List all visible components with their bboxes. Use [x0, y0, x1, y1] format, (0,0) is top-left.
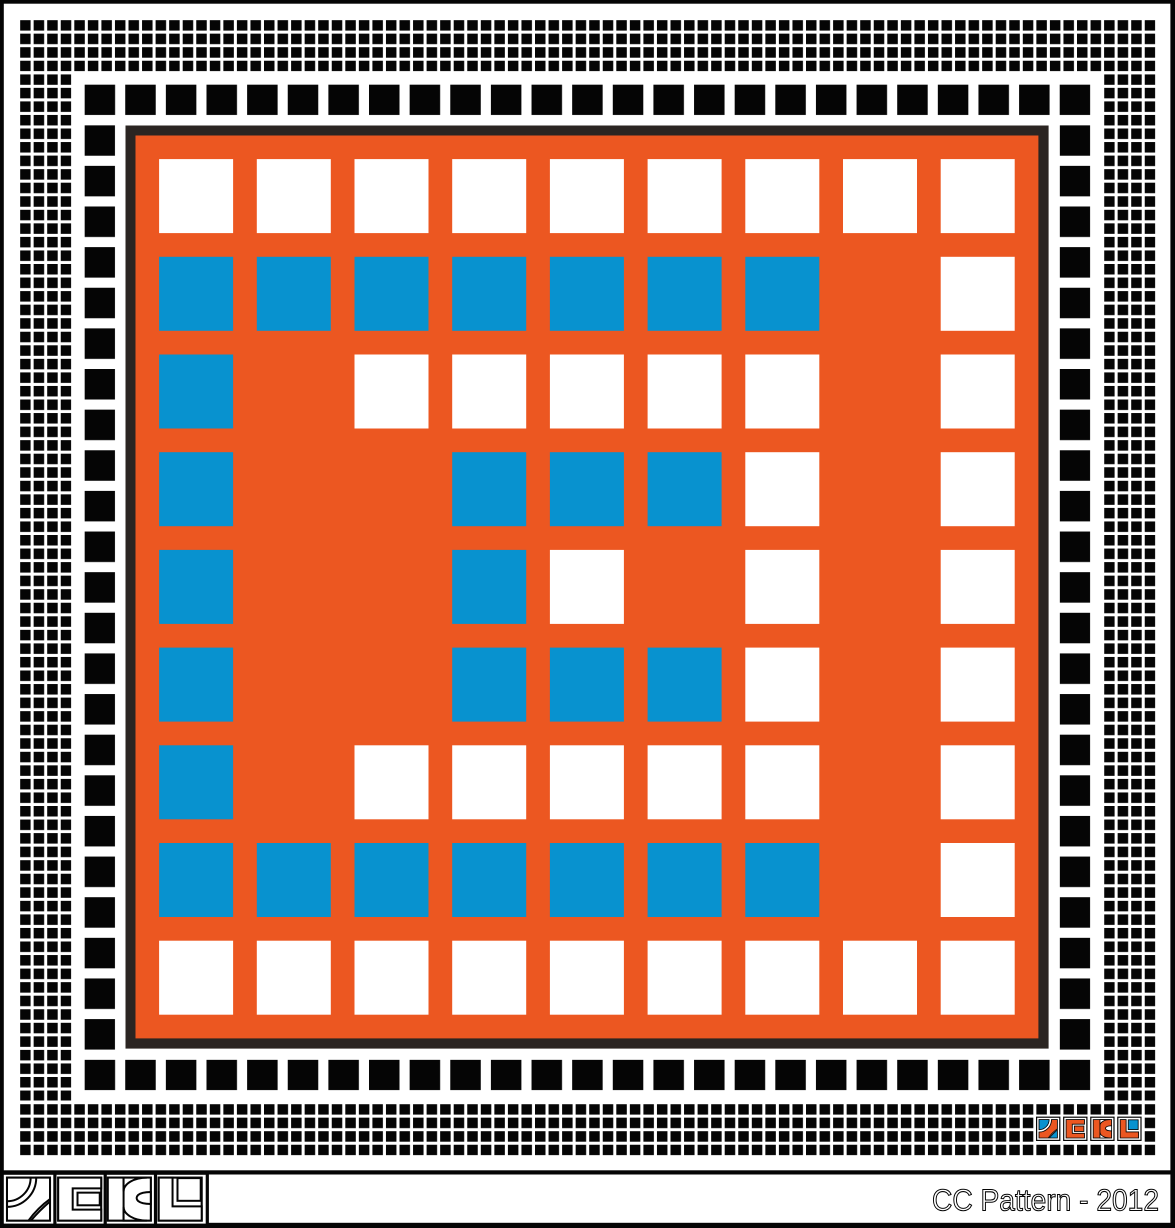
svg-text:CC Pattern - 2012: CC Pattern - 2012	[932, 1183, 1159, 1217]
